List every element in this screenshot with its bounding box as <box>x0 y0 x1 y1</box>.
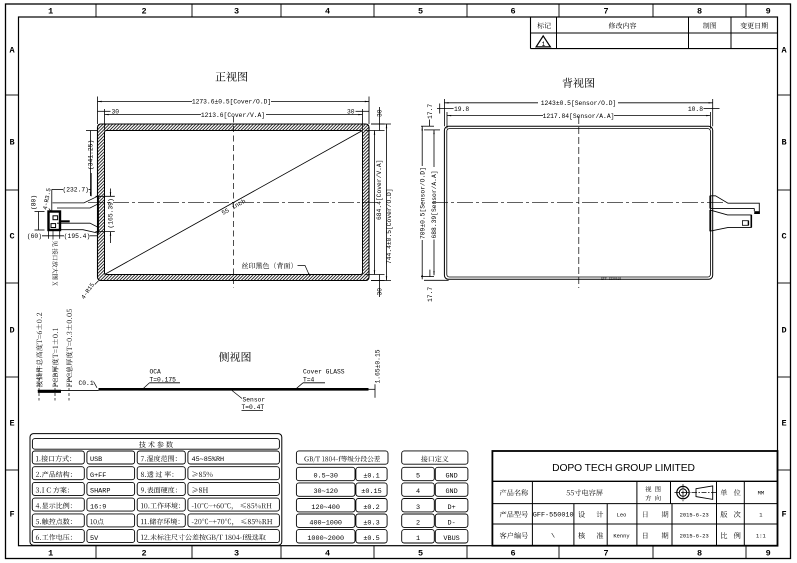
svg-text:8: 8 <box>697 6 702 16</box>
svg-text:1:1: 1:1 <box>756 534 766 540</box>
svg-text:GFF-550010: GFF-550010 <box>601 278 621 282</box>
svg-text:GFF-550010: GFF-550010 <box>533 511 574 519</box>
svg-text:30: 30 <box>347 109 355 116</box>
svg-text:D+: D+ <box>448 504 456 512</box>
svg-text:3: 3 <box>234 548 239 558</box>
svg-text:6: 6 <box>510 548 515 558</box>
svg-text:6: 6 <box>510 6 515 16</box>
svg-text:709±0.5[Sensor/O.D]: 709±0.5[Sensor/O.D] <box>419 167 426 239</box>
svg-text:±0.5: ±0.5 <box>363 535 379 543</box>
svg-text:30: 30 <box>112 109 120 116</box>
svg-text:1: 1 <box>48 6 53 16</box>
svg-text:Cover GLASS: Cover GLASS <box>303 369 345 376</box>
svg-text:7: 7 <box>603 6 608 16</box>
svg-text:16:9: 16:9 <box>90 503 106 511</box>
svg-text:1213.6[Cover/V.A]: 1213.6[Cover/V.A] <box>201 112 265 119</box>
svg-text:E: E <box>9 419 14 429</box>
svg-text:45~85%RH: 45~85%RH <box>192 456 225 464</box>
svg-text:1217.84[Sensor/A.A]: 1217.84[Sensor/A.A] <box>543 113 615 120</box>
svg-text:T=0.4T: T=0.4T <box>242 404 265 411</box>
svg-text:4: 4 <box>325 548 330 558</box>
svg-text:A: A <box>781 46 787 56</box>
svg-text:30: 30 <box>377 288 384 296</box>
svg-text:9: 9 <box>766 548 771 558</box>
svg-text:1000~2000: 1000~2000 <box>307 535 344 543</box>
svg-text:5: 5 <box>418 6 423 16</box>
svg-text:D: D <box>781 326 786 336</box>
svg-text:C: C <box>781 232 786 242</box>
svg-text:17.7: 17.7 <box>427 104 434 119</box>
svg-text:(60): (60) <box>27 233 42 240</box>
svg-text:4: 4 <box>416 488 420 496</box>
svg-text:744.4±0.5[Cover/O.D]: 744.4±0.5[Cover/O.D] <box>386 188 393 264</box>
svg-text:MM: MM <box>758 491 764 497</box>
svg-text:C0.1: C0.1 <box>79 380 94 387</box>
svg-text:30~120: 30~120 <box>313 488 337 496</box>
svg-text:30: 30 <box>377 109 384 117</box>
svg-text:1243±0.5[Sensor/O.D]: 1243±0.5[Sensor/O.D] <box>541 100 617 107</box>
svg-text:5: 5 <box>416 473 420 481</box>
svg-text:1.65±0.15: 1.65±0.15 <box>374 349 381 383</box>
svg-text:7: 7 <box>603 548 608 558</box>
svg-text:9: 9 <box>766 6 771 16</box>
svg-text:F: F <box>781 510 786 520</box>
svg-text:F: F <box>9 510 14 520</box>
svg-text:±0.1: ±0.1 <box>363 473 379 481</box>
svg-text:GND: GND <box>445 488 457 496</box>
svg-text:(80): (80) <box>31 195 38 210</box>
svg-text:1273.6±0.5[Cover/O.D]: 1273.6±0.5[Cover/O.D] <box>192 99 271 106</box>
svg-text:GND: GND <box>445 473 457 481</box>
svg-text:3: 3 <box>416 504 420 512</box>
svg-text:10.8: 10.8 <box>688 106 703 113</box>
svg-text:VBUS: VBUS <box>443 535 459 543</box>
svg-text:688.39[Sensor/A.A]: 688.39[Sensor/A.A] <box>431 170 438 238</box>
svg-text:120~400: 120~400 <box>311 504 340 512</box>
svg-text:17.7: 17.7 <box>427 287 434 302</box>
svg-text:8: 8 <box>697 548 702 558</box>
svg-text:±0.2: ±0.2 <box>363 504 379 512</box>
svg-text:1: 1 <box>48 548 53 558</box>
svg-text:0.5~30: 0.5~30 <box>313 473 337 481</box>
svg-text:Leo: Leo <box>617 512 627 518</box>
svg-text:DOPO TECH GROUP LIMITED: DOPO TECH GROUP LIMITED <box>552 463 695 474</box>
svg-text:D: D <box>9 326 14 336</box>
svg-text:5: 5 <box>418 548 423 558</box>
svg-text:4: 4 <box>325 6 330 16</box>
svg-text:Kenny: Kenny <box>613 534 630 540</box>
svg-text:\: \ <box>551 533 555 541</box>
svg-text:1: 1 <box>541 41 545 48</box>
svg-text:OCA: OCA <box>150 369 162 376</box>
svg-text:(232.7): (232.7) <box>62 187 88 194</box>
svg-text:400~1000: 400~1000 <box>309 519 342 527</box>
svg-text:2: 2 <box>416 519 420 527</box>
svg-text:(165.39): (165.39) <box>108 198 115 228</box>
svg-text:5V: 5V <box>90 535 99 543</box>
svg-text:3: 3 <box>234 6 239 16</box>
svg-text:C: C <box>9 232 14 242</box>
svg-text:2: 2 <box>141 6 146 16</box>
svg-text:19.8: 19.8 <box>454 106 469 113</box>
svg-text:A: A <box>9 46 15 56</box>
svg-text:±0.3: ±0.3 <box>363 519 379 527</box>
svg-text:D-: D- <box>448 519 456 527</box>
svg-text:SHARP: SHARP <box>90 488 110 496</box>
svg-text:USB: USB <box>90 456 102 464</box>
svg-text:E: E <box>781 419 786 429</box>
svg-text:1: 1 <box>759 512 762 518</box>
svg-text:B: B <box>781 138 786 148</box>
svg-text:B: B <box>9 138 14 148</box>
svg-text:1: 1 <box>416 535 420 543</box>
svg-text:G+FF: G+FF <box>90 472 106 480</box>
svg-text:(341.25): (341.25) <box>88 140 95 170</box>
svg-text:2: 2 <box>141 548 146 558</box>
svg-text:(195.4): (195.4) <box>64 233 90 240</box>
svg-text:684.4[Cover/V.A]: 684.4[Cover/V.A] <box>376 160 383 220</box>
svg-text:±0.15: ±0.15 <box>361 488 381 496</box>
svg-text:Sensor: Sensor <box>243 397 266 404</box>
svg-text:2015-6-23: 2015-6-23 <box>680 534 709 540</box>
svg-text:2015-6-23: 2015-6-23 <box>680 512 709 518</box>
svg-text:T=0.175: T=0.175 <box>150 376 177 383</box>
svg-text:T=4: T=4 <box>303 376 315 383</box>
